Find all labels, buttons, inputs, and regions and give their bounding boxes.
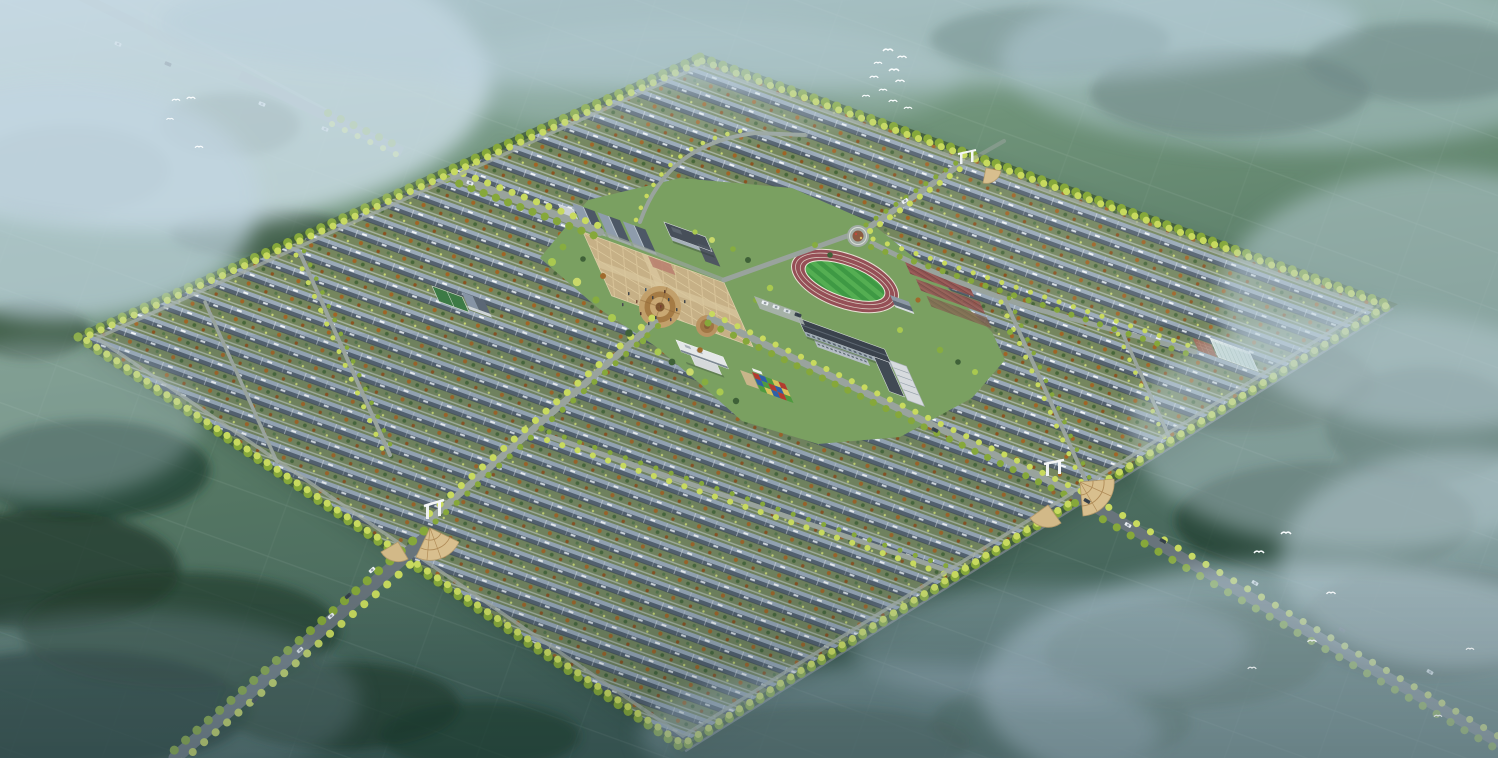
scene-canvas [0, 0, 1498, 758]
vignette [0, 0, 1498, 758]
aerial-rendering [0, 0, 1498, 758]
